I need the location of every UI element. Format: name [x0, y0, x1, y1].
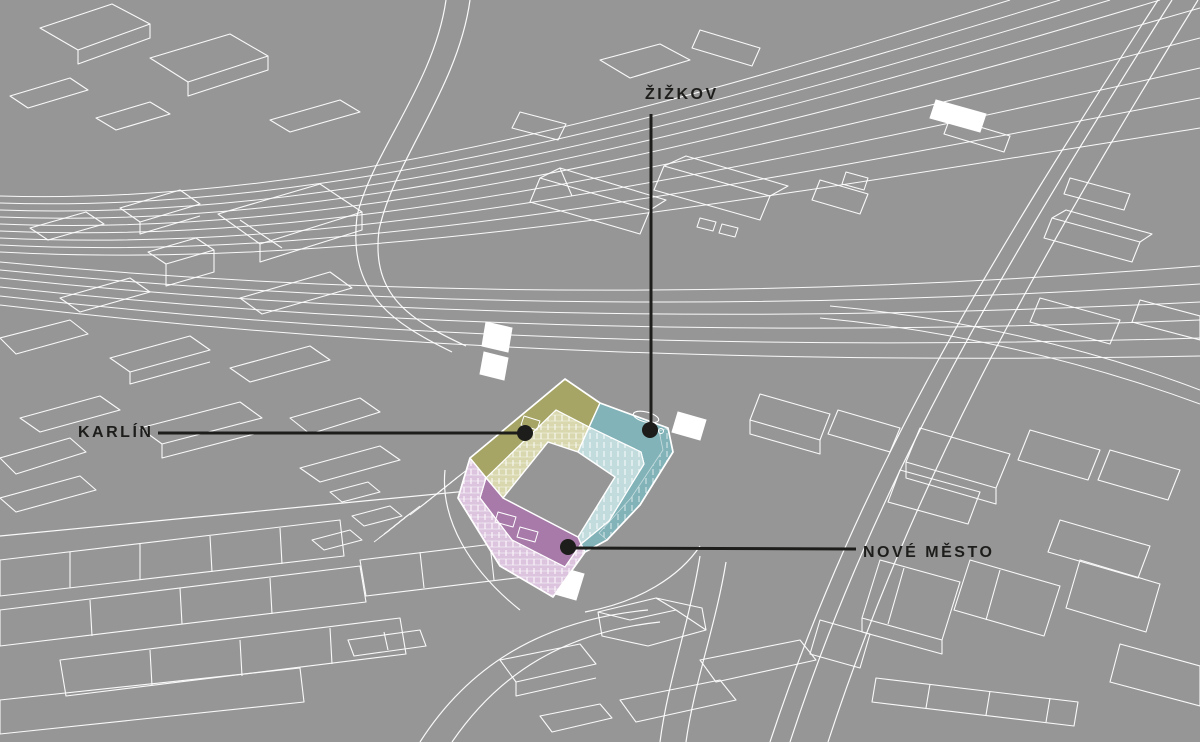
district-label-karlin: KARLÍN — [78, 424, 153, 442]
zizkov-leader-dot — [642, 422, 658, 438]
nove-mesto-leader-dot — [560, 539, 576, 555]
nove-mesto-leader-line — [574, 548, 856, 549]
district-label-nove-mesto: NOVÉ MĚSTO — [863, 544, 994, 562]
map-background — [0, 0, 1200, 742]
karlin-leader-dot — [517, 425, 533, 441]
district-label-zizkov: ŽIŽKOV — [645, 86, 719, 104]
site-map-stage: ŽIŽKOV KARLÍN NOVÉ MĚSTO — [0, 0, 1200, 742]
site-map-drawing — [0, 0, 1200, 742]
